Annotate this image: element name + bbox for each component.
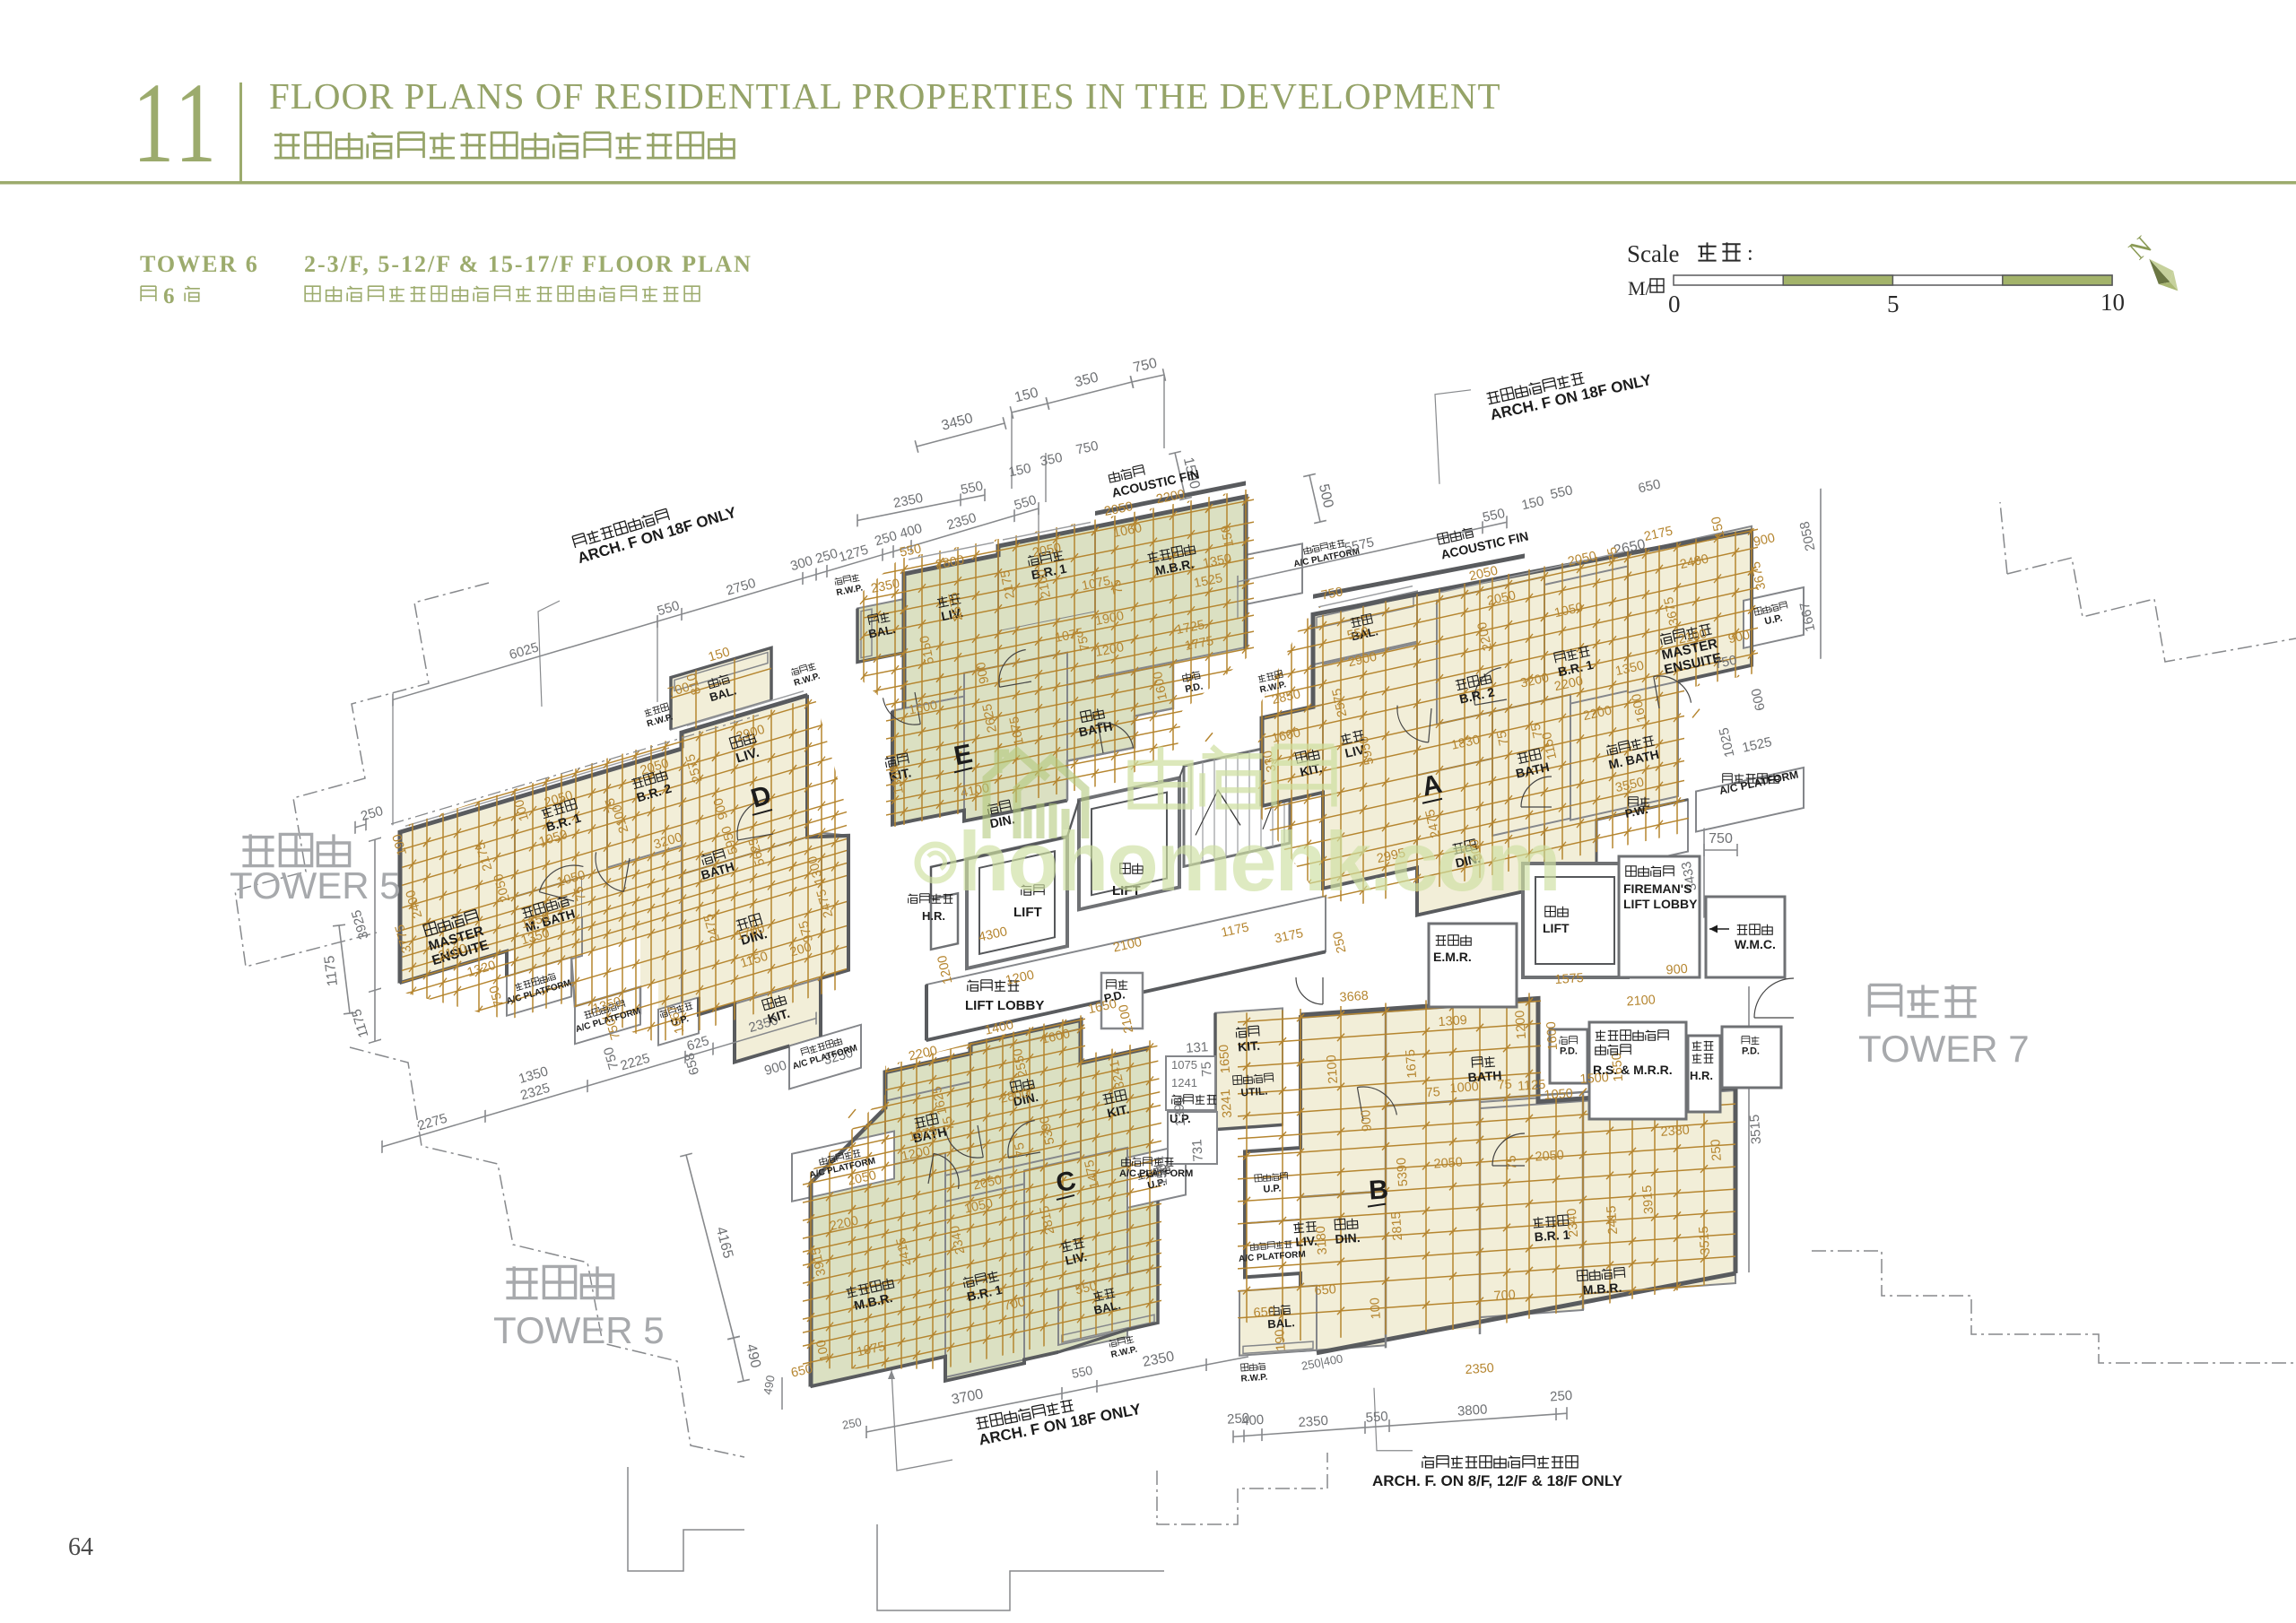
svg-text:75: 75 [1605,545,1622,562]
svg-text:B.R. 1: B.R. 1 [1534,1228,1570,1245]
svg-text:1650: 1650 [1217,1044,1233,1073]
svg-text:2350: 2350 [1298,1413,1328,1430]
svg-text:2350: 2350 [1465,1361,1494,1377]
svg-text:M.B.R.: M.B.R. [1582,1280,1622,1298]
svg-text:1000: 1000 [1449,1080,1479,1096]
svg-text:TOWER 7: TOWER 7 [1858,1028,2030,1070]
svg-text:75: 75 [1495,730,1512,747]
svg-text:1575: 1575 [1554,971,1584,987]
svg-text:0: 0 [1668,291,1681,317]
svg-text:75: 75 [1109,578,1126,595]
svg-text:3915: 3915 [1640,1185,1657,1214]
svg-text:2-3/F, 5-12/F & 15-17/F FLOOR: 2-3/F, 5-12/F & 15-17/F FLOOR PLAN [304,251,752,277]
svg-text:75: 75 [941,1115,958,1132]
svg-text:2340: 2340 [1565,1208,1581,1237]
svg-text:H.R.: H.R. [922,909,945,923]
svg-text:1396: 1396 [1171,1096,1188,1126]
svg-text:LIFT LOBBY: LIFT LOBBY [965,998,1044,1013]
svg-text:1309: 1309 [1438,1013,1467,1029]
svg-text:ARCH. F. ON 8/F, 12/F & 18/F O: ARCH. F. ON 8/F, 12/F & 18/F ONLY [1372,1472,1623,1489]
svg-text:3515: 3515 [1697,1226,1713,1255]
svg-text:LIFT LOBBY: LIFT LOBBY [1623,897,1698,911]
svg-text:2100: 2100 [1325,1055,1341,1084]
svg-text:75: 75 [1198,1061,1214,1077]
svg-text:5: 5 [1887,291,1900,317]
svg-text:700: 700 [1493,1288,1516,1304]
svg-text:FLOOR PLANS OF RESIDENTIAL PRO: FLOOR PLANS OF RESIDENTIAL PROPERTIES IN… [269,75,1501,117]
svg-text:3800: 3800 [1457,1402,1487,1419]
svg-text:731: 731 [1189,1139,1206,1162]
svg-text:11: 11 [133,61,220,187]
svg-text:75: 75 [1425,1085,1440,1100]
svg-text:100: 100 [1368,1297,1384,1319]
svg-text:1600: 1600 [1544,1021,1561,1051]
svg-text:1200: 1200 [1513,1010,1529,1039]
svg-text:2415: 2415 [1605,1205,1621,1235]
svg-text:FIREMAN'S: FIREMAN'S [1623,881,1692,896]
svg-text:3241: 3241 [1219,1089,1235,1118]
svg-text:P.D.: P.D. [1742,1046,1760,1056]
svg-text:3180: 3180 [1314,1226,1330,1255]
svg-text:1675: 1675 [1404,1049,1420,1079]
svg-text:2100: 2100 [1626,993,1656,1009]
svg-text:1050: 1050 [1544,1087,1573,1103]
svg-text:900: 900 [1665,962,1688,978]
svg-text:KIT.: KIT. [1238,1038,1261,1055]
svg-text:5390: 5390 [1395,1157,1411,1186]
svg-text:Scale: Scale [1627,240,1679,267]
svg-text:75: 75 [1497,1078,1512,1093]
svg-text:R.W.P.: R.W.P. [1240,1373,1268,1384]
svg-text:1504: 1504 [1153,1156,1170,1186]
svg-text:6: 6 [163,284,175,308]
svg-text:1125: 1125 [1518,1078,1546,1094]
svg-text:190: 190 [1273,1329,1289,1351]
svg-text:M/: M/ [1628,277,1652,299]
svg-text:H.R.: H.R. [1690,1069,1713,1082]
svg-text:DIN.: DIN. [1335,1230,1361,1246]
svg-text:U.P.: U.P. [1263,1183,1282,1194]
svg-text:64: 64 [68,1533,93,1561]
svg-text:1241: 1241 [1171,1076,1197,1089]
svg-text:131: 131 [1186,1039,1209,1056]
svg-text:10: 10 [2100,289,2125,316]
svg-text:250: 250 [1550,1388,1573,1405]
svg-text:550: 550 [1365,1409,1388,1426]
svg-text:UTIL.: UTIL. [1240,1084,1268,1098]
svg-text:2050: 2050 [1535,1148,1564,1164]
svg-text:hohomehk.com: hohomehk.com [958,814,1560,908]
svg-text:3668: 3668 [1339,989,1369,1005]
svg-text:B: B [1368,1175,1389,1205]
svg-text:3515: 3515 [1747,1114,1764,1144]
svg-text:650: 650 [1314,1282,1336,1298]
svg-text:400: 400 [1241,1412,1265,1429]
svg-text:E.M.R.: E.M.R. [1433,950,1472,964]
svg-text:W.M.C.: W.M.C. [1735,937,1776,951]
svg-text:TOWER 5: TOWER 5 [493,1309,665,1351]
svg-text:TOWER 6: TOWER 6 [140,251,259,277]
svg-text:P.D.: P.D. [1560,1046,1578,1056]
svg-text:2380: 2380 [1660,1124,1690,1140]
svg-text:750: 750 [1709,831,1733,846]
svg-text:2815: 2815 [1389,1211,1405,1241]
svg-text::: : [1747,242,1753,265]
svg-text:2050: 2050 [1433,1155,1463,1171]
svg-text:1075: 1075 [1171,1058,1197,1072]
svg-text:TOWER 5: TOWER 5 [230,864,401,907]
svg-text:250: 250 [1709,1139,1725,1161]
svg-text:900: 900 [1359,1109,1375,1132]
svg-text:650: 650 [1253,1305,1275,1321]
svg-text:R.S. & M.R.R.: R.S. & M.R.R. [1593,1063,1673,1077]
svg-text:75: 75 [1013,1141,1030,1159]
svg-text:75: 75 [1504,1155,1519,1170]
svg-text:LIFT: LIFT [1543,921,1570,935]
